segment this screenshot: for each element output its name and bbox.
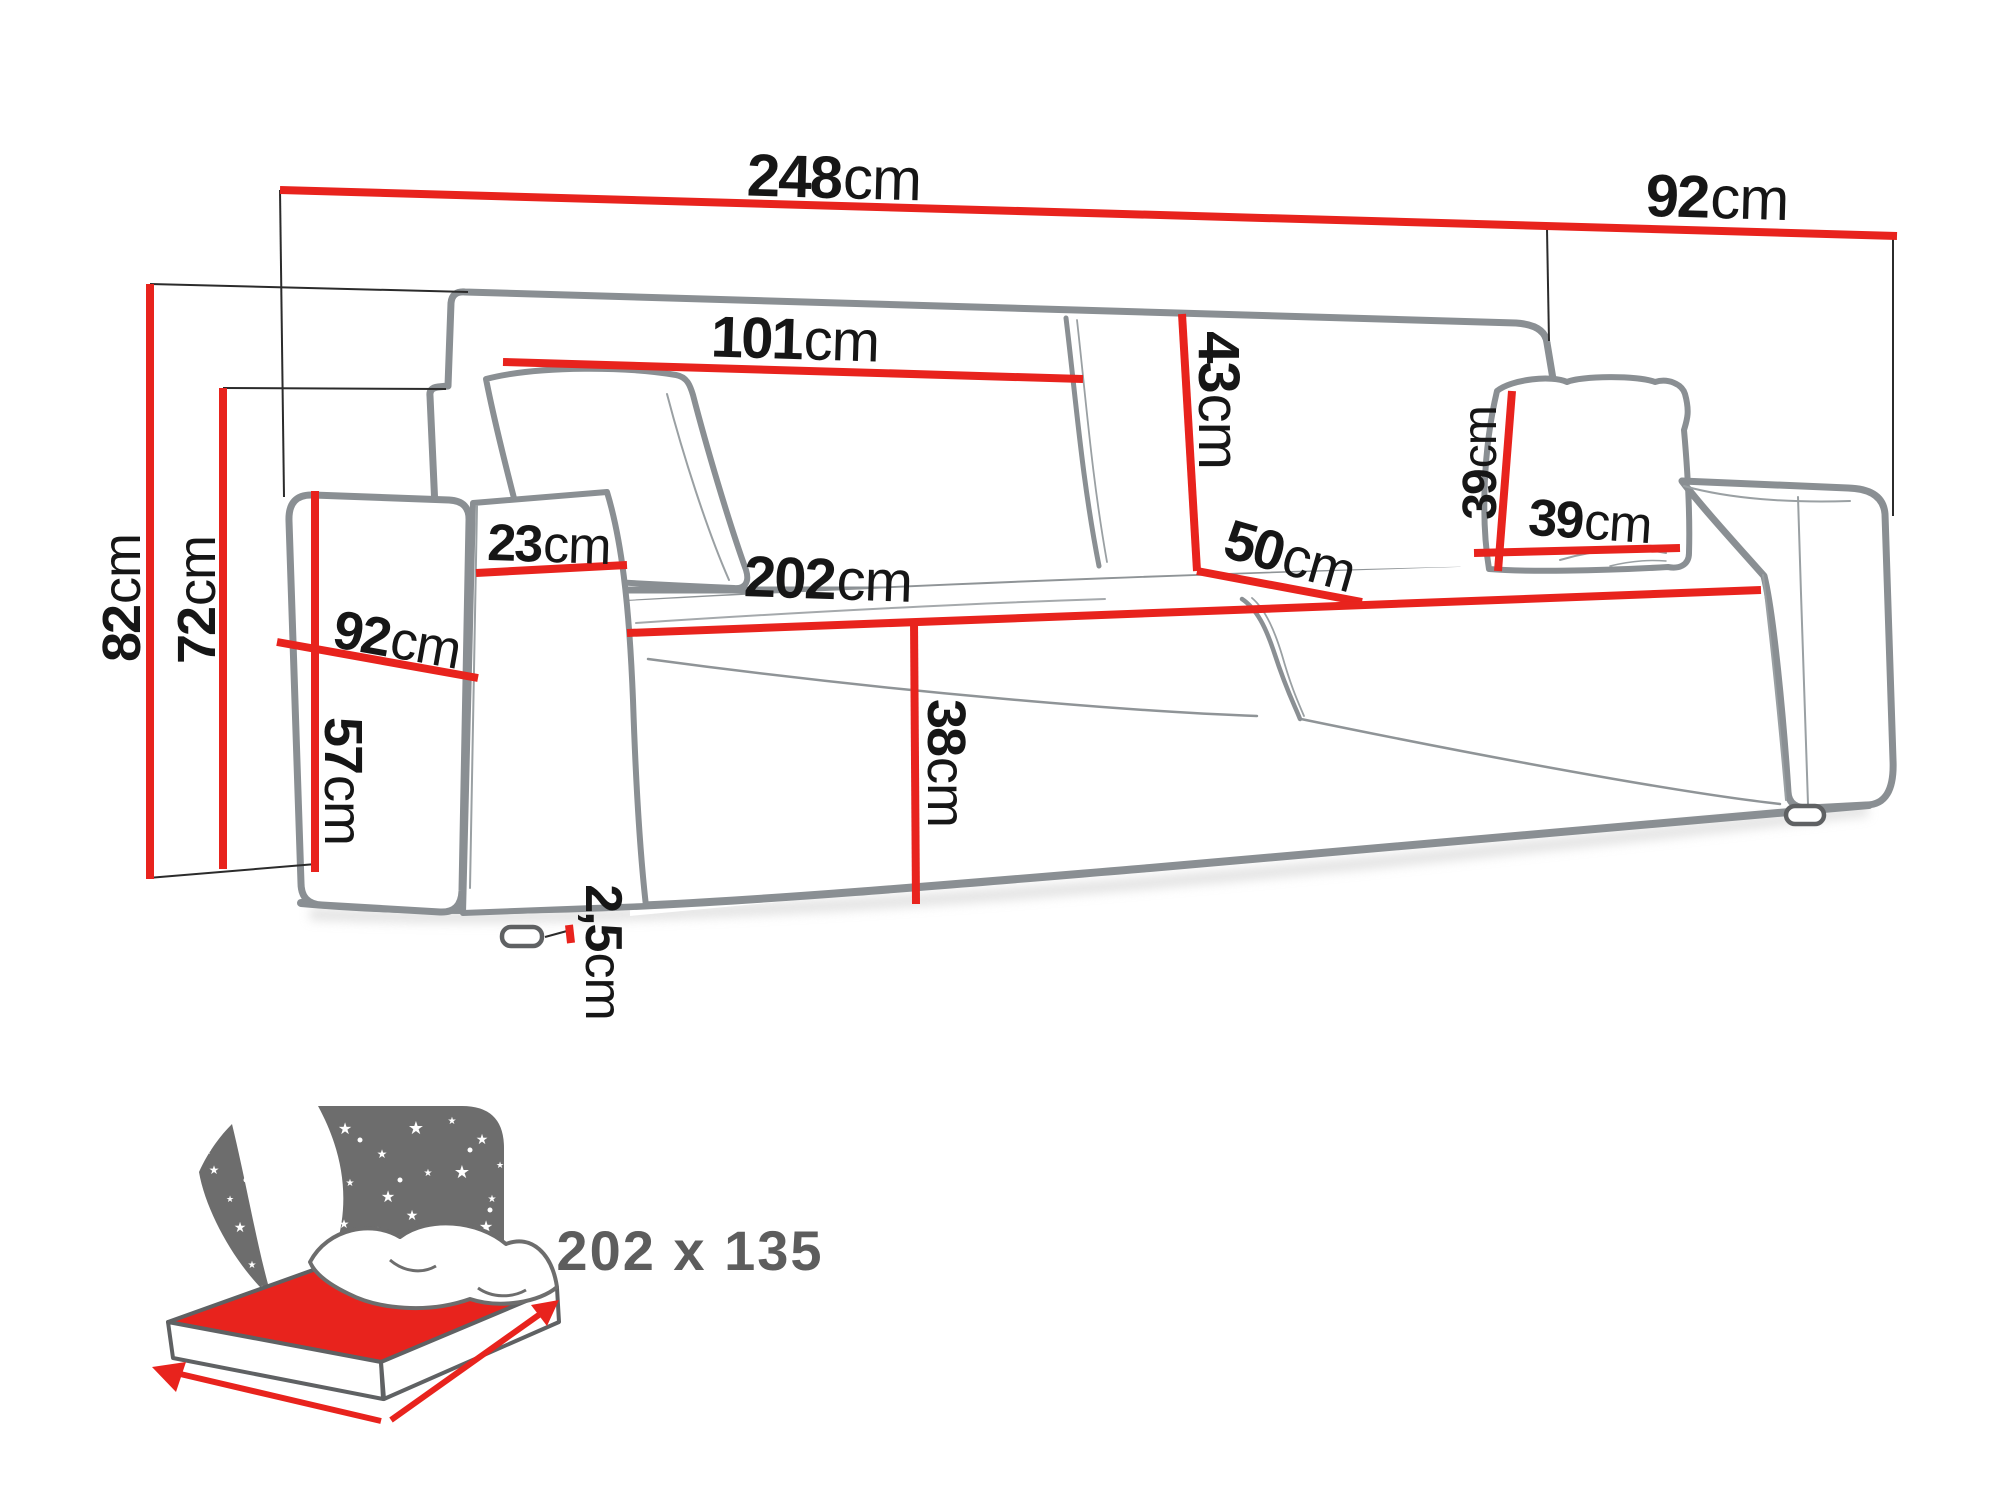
sofa-dimension-diagram: ★★ ★★ ★★ ★★ ★★ ★★ ★★ ★★ ★★ ★★ ★★ <box>0 0 2000 1500</box>
dim-armrest-width-label: 23cm <box>487 517 612 573</box>
svg-text:★: ★ <box>496 1161 504 1171</box>
sofa-bed-icon: ★★ ★★ ★★ ★★ ★★ ★★ ★★ ★★ ★★ ★★ ★★ <box>152 1106 559 1421</box>
svg-text:★: ★ <box>488 1194 497 1205</box>
dim-total-depth-label: 92cm <box>1645 166 1789 230</box>
svg-text:★: ★ <box>226 1195 234 1205</box>
dim-leg-height-label: 2,5cm <box>577 884 629 1020</box>
dim-seat-height-label: 38cm <box>919 699 973 827</box>
svg-text:★: ★ <box>209 1163 220 1177</box>
svg-text:★: ★ <box>377 1147 388 1161</box>
svg-text:★: ★ <box>346 1178 355 1189</box>
front-leg <box>502 927 542 946</box>
dim-backrest-height-label: 43cm <box>1189 331 1247 469</box>
svg-text:★: ★ <box>234 1220 247 1236</box>
dim-armrest-height-label: 57cm <box>316 717 370 845</box>
svg-text:★: ★ <box>204 1147 211 1156</box>
dim-pillow-height-label: 39cm <box>1457 406 1505 519</box>
svg-text:★: ★ <box>476 1132 489 1148</box>
sleeping-area-label: 202 x 135 <box>556 1223 823 1279</box>
svg-text:★: ★ <box>448 1116 457 1127</box>
svg-text:★: ★ <box>338 1119 352 1138</box>
svg-text:★: ★ <box>339 1217 350 1231</box>
dim-frame-height-label: 72cm <box>170 536 224 664</box>
dim-total-height-label: 82cm <box>95 534 149 662</box>
dim-total-width-label: 248cm <box>746 146 922 211</box>
dim-backrest-width-label: 101cm <box>710 308 880 371</box>
svg-text:★: ★ <box>454 1162 470 1183</box>
svg-text:★: ★ <box>406 1208 419 1224</box>
dim-seat-width-label: 202cm <box>743 548 913 612</box>
dim-line-leg-height <box>569 925 571 943</box>
svg-text:★: ★ <box>408 1118 424 1139</box>
svg-text:★: ★ <box>381 1187 395 1206</box>
svg-text:★: ★ <box>248 1260 257 1271</box>
right-leg <box>1786 806 1824 824</box>
dim-pillow-width-label: 39cm <box>1527 492 1653 552</box>
svg-text:★: ★ <box>424 1168 433 1179</box>
